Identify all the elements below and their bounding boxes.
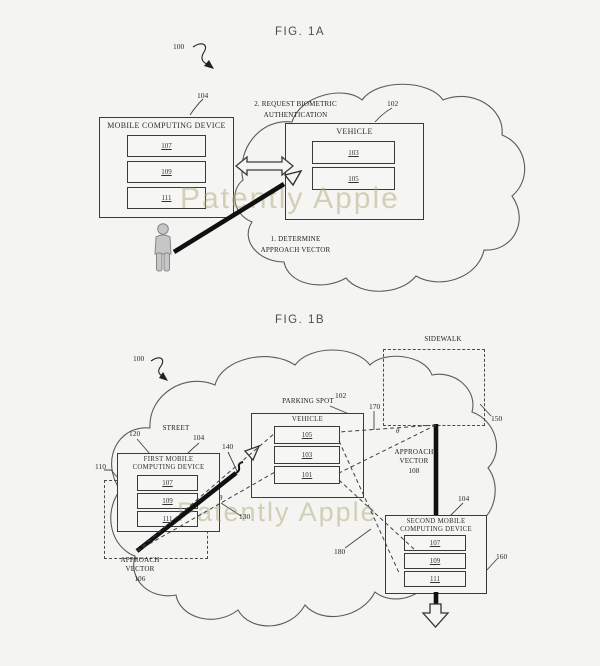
- second-device-title-line1: SECOND MOBILE: [386, 518, 486, 526]
- vehicle-box-fig1b: VEHICLE 105 103 101: [251, 413, 364, 498]
- second-device-title-line2: COMPUTING DEVICE: [386, 526, 486, 534]
- mobile-computing-device-title: MOBILE COMPUTING DEVICE: [100, 121, 233, 131]
- module-107: 107: [127, 135, 206, 157]
- ref-180: 180: [334, 547, 345, 556]
- av108-line3: 108: [386, 467, 442, 476]
- person-icon: [155, 224, 171, 271]
- ref-130: 130: [239, 512, 250, 521]
- vehicle-title-fig1b: VEHICLE: [252, 416, 363, 424]
- ref-100-arrowhead-fig1a: [204, 60, 214, 69]
- av106-line2: VECTOR: [112, 565, 168, 574]
- second-device-module-107: 107: [404, 535, 466, 551]
- vehicle-module-105: 105: [274, 426, 340, 444]
- vehicle-module-105-label: 105: [302, 431, 313, 439]
- exit-arrow-down: [423, 604, 448, 627]
- fig1a-request-annotation: 2. REQUEST BIOMETRIC AUTHENTICATION: [243, 99, 348, 120]
- theta-angle-left: θ: [219, 494, 222, 502]
- approach-vector-106-label: APPROACH VECTOR 106: [112, 556, 168, 584]
- module-111-label: 111: [162, 194, 172, 202]
- sidewalk-label: SIDEWALK: [413, 334, 473, 345]
- first-device-title-line1: FIRST MOBILE: [118, 456, 219, 464]
- av106-line1: APPROACH: [112, 556, 168, 565]
- determine-line1: 1. DETERMINE: [248, 234, 343, 245]
- ref-140: 140: [222, 442, 233, 451]
- approach-vector-108-label: APPROACH VECTOR 108: [386, 448, 442, 476]
- fig1a-determine-annotation: 1. DETERMINE APPROACH VECTOR: [248, 234, 343, 255]
- first-device-module-107-label: 107: [162, 479, 173, 487]
- watermark-fig1a: Patently Apple: [180, 182, 400, 216]
- second-device-module-111-label: 111: [430, 575, 440, 583]
- ref-120: 120: [129, 429, 140, 438]
- ref-100-arrowhead-fig1b: [159, 372, 168, 381]
- first-device-title: FIRST MOBILE COMPUTING DEVICE: [118, 456, 219, 472]
- fig1b-title: FIG. 1B: [255, 314, 345, 326]
- second-device-title: SECOND MOBILE COMPUTING DEVICE: [386, 518, 486, 534]
- module-107-label: 107: [161, 142, 172, 150]
- fig1a-title: FIG. 1A: [255, 26, 345, 38]
- vehicle-module-101: 101: [274, 466, 340, 484]
- fig1b-ref-100: 100: [133, 354, 144, 363]
- first-device-module-111-label: 111: [163, 515, 173, 523]
- module-103: 103: [312, 141, 395, 164]
- request-line1: 2. REQUEST BIOMETRIC: [243, 99, 348, 110]
- vehicle-module-103-label: 103: [302, 451, 313, 459]
- vehicle-module-101-label: 101: [302, 471, 313, 479]
- fig1a-ref-102: 102: [387, 99, 398, 108]
- second-device-module-109: 109: [404, 553, 466, 569]
- determine-line2: APPROACH VECTOR: [248, 245, 343, 256]
- first-device-module-109-label: 109: [162, 497, 173, 505]
- second-device-module-107-label: 107: [430, 539, 441, 547]
- module-109: 109: [127, 161, 206, 183]
- first-device-title-line2: COMPUTING DEVICE: [118, 464, 219, 472]
- av108-line2: VECTOR: [386, 457, 442, 466]
- ref-150: 150: [491, 414, 502, 423]
- watermark-fig1b: Patently Apple: [177, 497, 378, 528]
- parking-spot-label: PARKING SPOT: [282, 396, 334, 407]
- ref-170: 170: [369, 402, 380, 411]
- ref-104-second: 104: [458, 494, 469, 503]
- av106-line3: 106: [112, 575, 168, 584]
- second-device-module-111: 111: [404, 571, 466, 587]
- sidewalk-zone: [383, 349, 485, 426]
- second-device-module-109-label: 109: [430, 557, 441, 565]
- ref-100-arrow-fig1a: [193, 44, 209, 65]
- av108-line1: APPROACH: [386, 448, 442, 457]
- fig1a-ref-104: 104: [197, 91, 208, 100]
- ref-110: 110: [95, 462, 106, 471]
- street-label: STREET: [156, 423, 196, 434]
- request-line2: AUTHENTICATION: [243, 110, 348, 121]
- first-device-module-107: 107: [137, 475, 198, 491]
- module-103-label: 103: [348, 149, 359, 157]
- vehicle-title-fig1a: VEHICLE: [286, 127, 423, 137]
- second-mobile-computing-device-box: SECOND MOBILE COMPUTING DEVICE 107 109 1…: [385, 515, 487, 594]
- ref-160: 160: [496, 552, 507, 561]
- theta-angle-right: θ: [396, 427, 399, 435]
- ref-100-arrow-fig1b: [151, 358, 164, 377]
- module-109-label: 109: [161, 168, 172, 176]
- fig1a-ref-100: 100: [173, 42, 184, 51]
- patent-figure-page: FIG. 1A 100 104 102 2. REQUEST BIOMETRIC…: [0, 0, 600, 666]
- ref-104-first: 104: [193, 433, 204, 442]
- ref-102: 102: [335, 391, 346, 400]
- vehicle-module-103: 103: [274, 446, 340, 464]
- approach-vector-106-squiggle: [236, 462, 243, 473]
